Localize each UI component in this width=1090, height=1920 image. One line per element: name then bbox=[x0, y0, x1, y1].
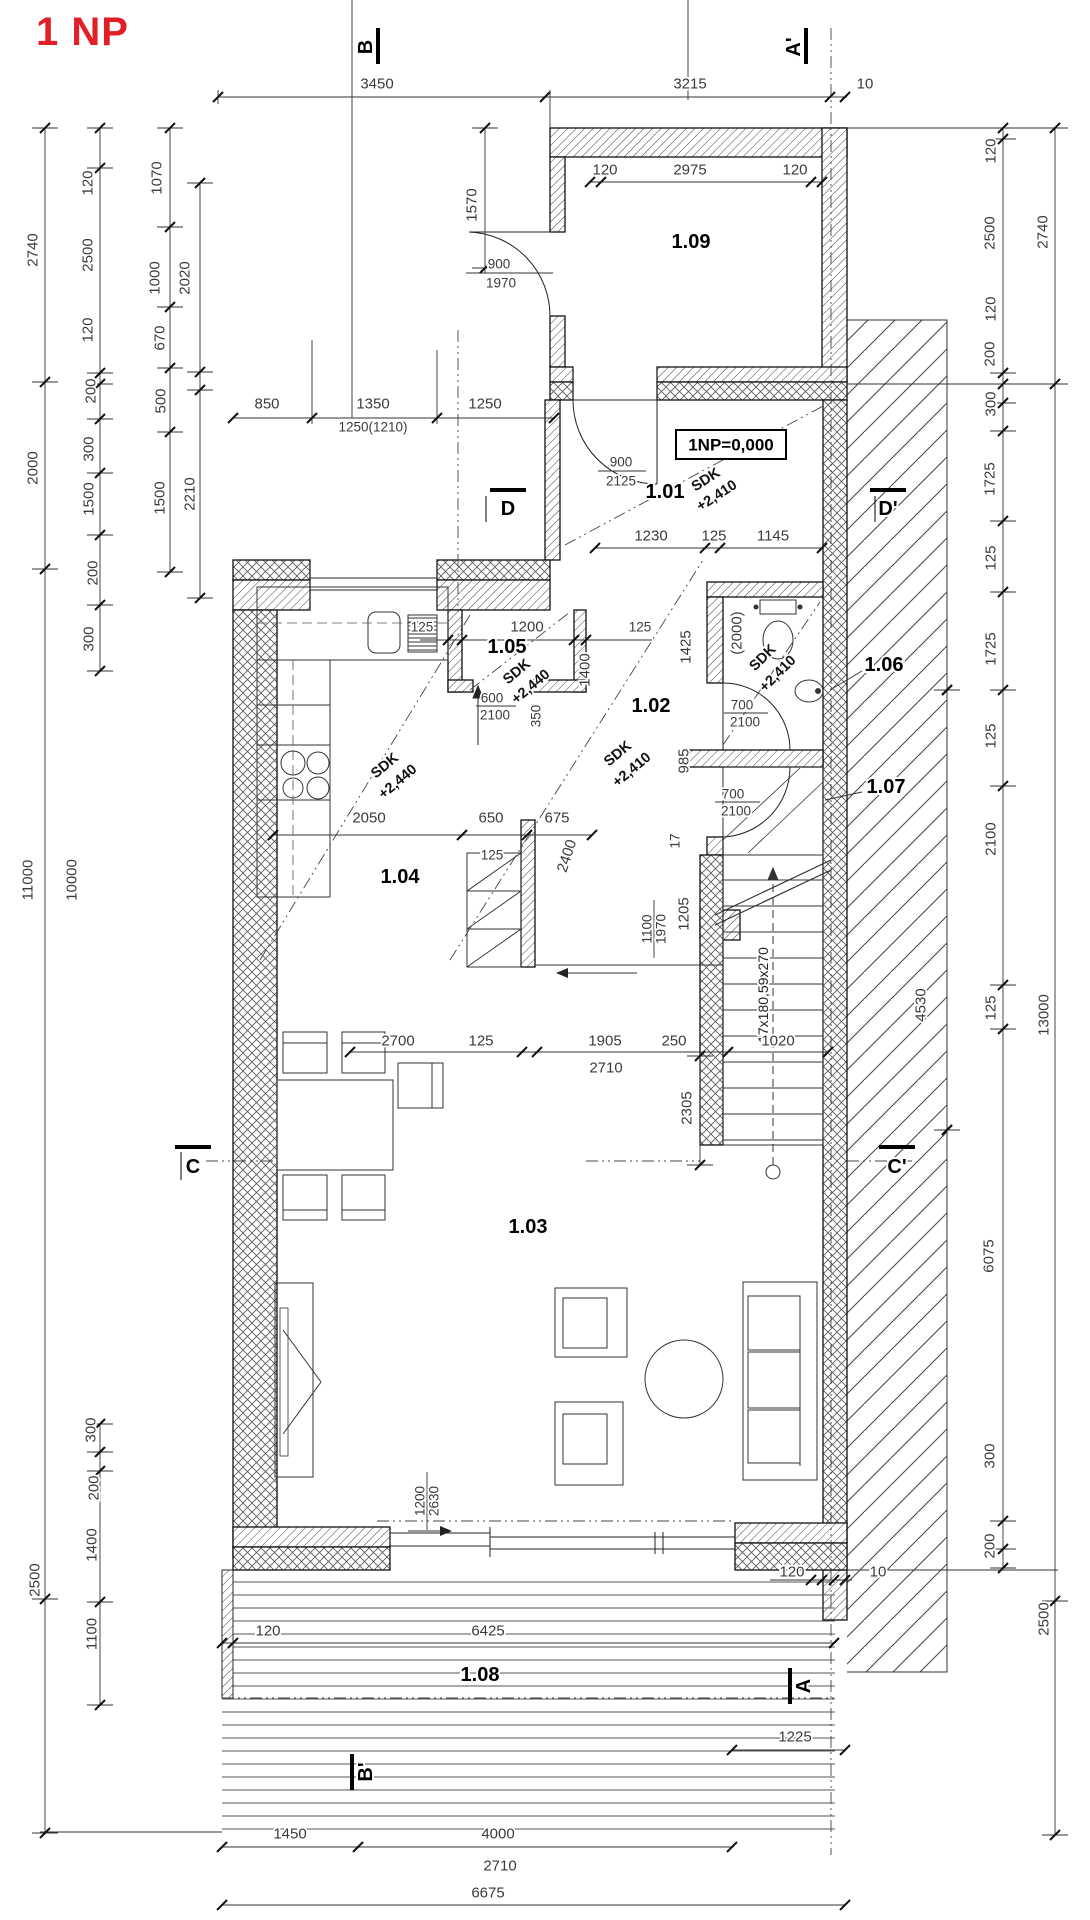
dim-label: 120 bbox=[80, 170, 97, 195]
stair-start-circle bbox=[766, 1165, 780, 1179]
garage-top-wall bbox=[550, 128, 847, 157]
dim-label: 2305 bbox=[679, 1091, 696, 1124]
walls bbox=[233, 128, 847, 1620]
dim-label: 500 bbox=[153, 388, 170, 413]
dim-label: 1570 bbox=[464, 188, 481, 221]
dim-label: 2500 bbox=[27, 1563, 44, 1596]
room-label: 1.04 bbox=[381, 866, 421, 888]
dim-label: 700 bbox=[731, 698, 754, 713]
dim-label: 250 bbox=[661, 1033, 686, 1050]
dim-label: 2740 bbox=[1035, 215, 1052, 248]
garage-left-wall bbox=[550, 157, 565, 232]
dim-label: 4000 bbox=[481, 1826, 514, 1843]
toilet-tank bbox=[760, 600, 796, 614]
dim-label: 900 bbox=[488, 257, 511, 272]
dim-label: 200 bbox=[86, 1475, 103, 1500]
dim-label: 1100 bbox=[640, 914, 655, 943]
dining-table bbox=[277, 1080, 393, 1170]
dim-label: 1145 bbox=[757, 528, 789, 545]
kitchen-top-wall bbox=[233, 580, 310, 610]
dim-label: 1070 bbox=[149, 161, 166, 194]
section-marker: D' bbox=[878, 498, 897, 520]
dim-label: 6075 bbox=[981, 1239, 998, 1272]
garage-door-swing bbox=[469, 232, 550, 316]
room-label: 1.06 bbox=[865, 654, 904, 676]
dim-label: 1400 bbox=[577, 653, 594, 686]
dim-label: 200 bbox=[85, 560, 102, 585]
dim-label: 670 bbox=[152, 325, 169, 350]
tv-icon bbox=[283, 1330, 321, 1382]
dim-label: 300 bbox=[982, 1443, 999, 1468]
room-label: 1.07 bbox=[867, 776, 906, 798]
wc-bottom-wall bbox=[687, 750, 823, 767]
section-marker: C bbox=[186, 1156, 200, 1178]
dim-label: 850 bbox=[254, 396, 279, 413]
dim-label: 300 bbox=[81, 436, 98, 461]
dim-label: 3450 bbox=[360, 76, 393, 93]
west-wall bbox=[233, 610, 277, 1557]
dim-label: 2630 bbox=[427, 1486, 442, 1516]
garage-left-wall bbox=[550, 316, 565, 367]
dim-label: 350 bbox=[529, 705, 544, 728]
sofa-cushion bbox=[748, 1296, 800, 1350]
kitchen-window bbox=[310, 560, 437, 610]
south-wall bbox=[735, 1523, 847, 1543]
entry-left-wall bbox=[545, 400, 560, 560]
tv-bench bbox=[275, 1283, 313, 1477]
dim-label: 2100 bbox=[721, 804, 751, 819]
dim-label: 300 bbox=[983, 391, 1000, 416]
section-marker: A bbox=[793, 1679, 815, 1693]
dim-label: 11000 bbox=[20, 860, 37, 901]
dim-label: 120 bbox=[592, 162, 617, 179]
dim-label: 1725 bbox=[982, 462, 999, 495]
dim-label: 900 bbox=[610, 455, 633, 470]
dim-label: 17 bbox=[668, 833, 683, 848]
dim-label: 125 bbox=[468, 1033, 493, 1050]
dim-label: 1100 bbox=[84, 1618, 101, 1650]
terrace bbox=[222, 1570, 835, 1829]
garage-bottom-wall bbox=[657, 367, 847, 382]
dim-label: 1205 bbox=[676, 897, 693, 930]
kitchen-top-wall bbox=[437, 560, 550, 580]
dim-label: 2000 bbox=[25, 451, 42, 484]
dining-chair bbox=[398, 1063, 443, 1108]
dim-label: 200 bbox=[982, 1533, 999, 1558]
section-marker: C' bbox=[887, 1156, 906, 1178]
dim-label: 1000 bbox=[147, 261, 164, 294]
dim-label: 125 bbox=[983, 995, 1000, 1020]
dim-label: 200 bbox=[83, 378, 100, 403]
dim-label: 1225 bbox=[778, 1729, 811, 1746]
kitchen-top-wall bbox=[437, 580, 550, 610]
stair-wall bbox=[700, 855, 723, 1145]
wc-top-wall bbox=[707, 582, 823, 597]
stove-burner bbox=[307, 752, 329, 774]
south-wall-insulation bbox=[233, 1547, 390, 1570]
dim-label: 120 bbox=[80, 317, 97, 342]
dim-label: 1970 bbox=[654, 914, 669, 944]
dim-label: 2020 bbox=[177, 261, 194, 294]
coffee-table bbox=[645, 1340, 723, 1418]
dim-label: 1450 bbox=[273, 1826, 306, 1843]
dim-label: 1905 bbox=[588, 1033, 621, 1050]
dim-label: 2500 bbox=[982, 216, 999, 249]
dim-label: 120 bbox=[779, 1564, 804, 1581]
terrace-decking bbox=[222, 1582, 835, 1829]
kitchen-top-wall bbox=[233, 560, 310, 580]
dim-label: 2710 bbox=[483, 1858, 516, 1875]
level-note-group: 1NP=0,000 bbox=[676, 430, 786, 459]
pantry-wall bbox=[448, 680, 473, 692]
garage-bottom-wall bbox=[550, 367, 573, 382]
stair-walk-arrow bbox=[768, 868, 778, 880]
dim-label: 120 bbox=[255, 1623, 280, 1640]
dim-label: 120 bbox=[983, 138, 1000, 163]
dim-label: 1200 bbox=[510, 619, 543, 636]
section-marker: B bbox=[355, 40, 377, 54]
south-wall bbox=[233, 1527, 390, 1547]
floor-plan-page: 1 NP bbox=[0, 0, 1090, 1920]
dim-label: 1500 bbox=[81, 482, 98, 515]
dim-label: 2100 bbox=[730, 715, 760, 730]
dim-label: 200 bbox=[982, 341, 999, 366]
dim-label: 2125 bbox=[606, 474, 636, 489]
dim-label: 1020 bbox=[761, 1033, 794, 1050]
dim-label: 2500 bbox=[1036, 1602, 1053, 1635]
dining-chair bbox=[342, 1175, 385, 1220]
stairs bbox=[715, 767, 831, 1179]
room-label: 1.05 bbox=[488, 636, 527, 658]
dim-label: 1250(1210) bbox=[338, 420, 407, 435]
neighbor-hatch-area bbox=[847, 320, 947, 1672]
dim-label: 1250 bbox=[468, 396, 501, 413]
room-label: 1.09 bbox=[672, 231, 711, 253]
dim-label: 1500 bbox=[152, 481, 169, 514]
room-label: 1.03 bbox=[509, 1216, 548, 1238]
kitchen-sink bbox=[368, 612, 400, 653]
sofa bbox=[743, 1282, 817, 1480]
dim-label: 1725 bbox=[983, 632, 1000, 665]
dim-label: 600 bbox=[481, 691, 504, 706]
reference-lines bbox=[206, 28, 912, 1855]
sofa-cushion bbox=[748, 1352, 800, 1408]
living-furniture bbox=[275, 1032, 817, 1485]
dim-label: 125 bbox=[411, 620, 434, 635]
dim-label: (2000) bbox=[729, 611, 746, 654]
section-marker: A' bbox=[783, 37, 805, 56]
room-label: 1.08 bbox=[461, 1664, 500, 1686]
dim-label: 13000 bbox=[1036, 994, 1053, 1036]
dim-label: 10000 bbox=[64, 859, 81, 901]
wc-sink-tap bbox=[816, 689, 821, 694]
section-marker: B' bbox=[355, 1762, 377, 1781]
dim-label: 1400 bbox=[84, 1528, 101, 1561]
dim-label: 2975 bbox=[673, 162, 706, 179]
level-note: 1NP=0,000 bbox=[688, 436, 774, 455]
garage-right-wall bbox=[822, 128, 847, 382]
dim-label: 2400 bbox=[554, 838, 580, 875]
dim-label: 2710 bbox=[589, 1060, 622, 1077]
house-top-insulation bbox=[657, 382, 847, 400]
dim-label: 1200 bbox=[413, 1486, 428, 1516]
dim-label: 300 bbox=[81, 626, 98, 651]
dim-label: 6675 bbox=[471, 1885, 504, 1902]
dim-label: 2500 bbox=[80, 238, 97, 271]
dim-label: 125 bbox=[481, 848, 504, 863]
dim-label: 10 bbox=[870, 1564, 887, 1581]
east-wall bbox=[823, 400, 847, 1570]
dim-label: 125 bbox=[983, 723, 1000, 748]
house-top-insulation bbox=[550, 382, 573, 400]
dim-label: 1425 bbox=[678, 630, 695, 663]
dim-label: 2700 bbox=[381, 1033, 414, 1050]
dim-label: 700 bbox=[722, 787, 745, 802]
terrace-side-wall bbox=[222, 1570, 233, 1698]
dim-label: 10 bbox=[857, 76, 874, 93]
dim-label: 120 bbox=[983, 296, 1000, 321]
dim-label: 300 bbox=[83, 1417, 100, 1442]
stair-note: 17x180,59x270 bbox=[755, 947, 771, 1043]
dining-chair bbox=[283, 1032, 327, 1073]
dim-label: 125 bbox=[701, 528, 726, 545]
dim-label: 6425 bbox=[471, 1623, 504, 1640]
section-marker: D bbox=[501, 498, 515, 520]
dim-label: 2050 bbox=[352, 810, 385, 827]
direction-arrows bbox=[440, 968, 568, 1536]
storage-left-wall bbox=[707, 837, 723, 855]
dim-label: 1230 bbox=[634, 528, 667, 545]
dim-label: 3215 bbox=[673, 76, 706, 93]
dim-label: 120 bbox=[782, 162, 807, 179]
dim-label: 2210 bbox=[182, 477, 199, 510]
dim-label: 125 bbox=[983, 545, 1000, 570]
sofa-cushion bbox=[748, 1410, 800, 1463]
dim-label: 1970 bbox=[486, 276, 516, 291]
dim-label: 1350 bbox=[356, 396, 389, 413]
terrace-sliding-door bbox=[490, 1532, 735, 1554]
stove-burner bbox=[307, 777, 329, 799]
dim-label: 675 bbox=[544, 810, 569, 827]
dim-label: 2100 bbox=[480, 708, 510, 723]
dim-label: 650 bbox=[478, 810, 503, 827]
room-label: 1.01 bbox=[646, 481, 685, 503]
tv-icon bbox=[283, 1382, 321, 1434]
dim-label: 2100 bbox=[983, 822, 1000, 855]
dim-label: 985 bbox=[676, 748, 693, 773]
room-label: 1.02 bbox=[632, 695, 671, 717]
dim-label: 2740 bbox=[25, 233, 42, 266]
floor-plan-canvas: 1NP=0,000 17x180,59x270 3450321510157012… bbox=[0, 0, 1090, 1920]
dim-label: 4530 bbox=[913, 988, 930, 1021]
dining-chair bbox=[283, 1175, 327, 1220]
hall-stub-wall bbox=[521, 820, 535, 967]
wc-left-wall bbox=[707, 597, 723, 683]
dim-label: 125 bbox=[629, 620, 652, 635]
